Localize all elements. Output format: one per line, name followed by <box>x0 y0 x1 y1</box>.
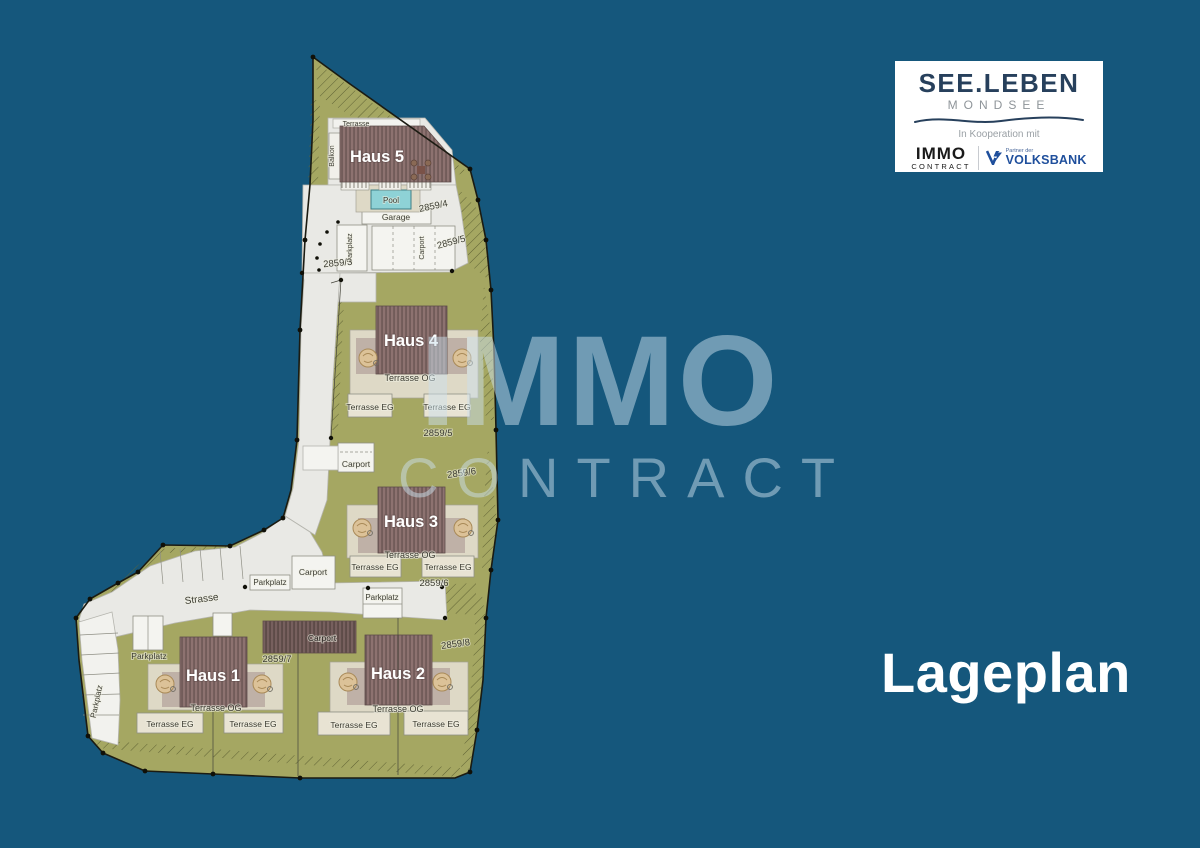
label-balkon: Balkon <box>329 145 336 167</box>
page: Haus 5 Haus 4 Haus 3 Haus 1 Haus 2 Terra… <box>0 0 1200 848</box>
page-title: Lageplan <box>881 640 1131 705</box>
label-terrasse-eg-h3a: Terrasse EG <box>351 562 398 572</box>
label-terrasse-eg-h1a: Terrasse EG <box>146 719 193 729</box>
brand-mondsee: MONDSEE <box>948 99 1051 111</box>
label-terrasse-og-h4: Terrasse OG <box>384 373 435 383</box>
label-carport-mid: Carport <box>342 459 371 469</box>
immocontract-logo: IMMO CONTRACT <box>911 145 970 171</box>
label-terrasse-og-h3: Terrasse OG <box>384 550 435 560</box>
immocontract-logo-sub: CONTRACT <box>911 163 970 171</box>
logo-divider <box>978 146 979 170</box>
label-parcel-2859-7: 2859/7 <box>262 654 291 665</box>
label-haus-5: Haus 5 <box>350 148 404 166</box>
label-terrasse-og-h2: Terrasse OG <box>372 704 423 714</box>
label-parkplatz-h1: Parkplatz <box>131 651 166 661</box>
label-parcel-2859-6b: 2859/6 <box>419 578 448 589</box>
label-carport-low: Carport <box>299 567 328 577</box>
label-haus-1: Haus 1 <box>186 667 240 685</box>
label-haus-4: Haus 4 <box>384 332 439 350</box>
partner-logos: IMMO CONTRACT Partner der VOLKSBANK <box>911 145 1086 171</box>
label-terrasse-eg-h2a: Terrasse EG <box>330 720 377 730</box>
label-terrasse-eg-h3b: Terrasse EG <box>424 562 471 572</box>
label-pool: Pool <box>383 196 399 205</box>
label-parkplatz-h2: Parkplatz <box>365 593 398 602</box>
volksbank-logo: Partner der VOLKSBANK <box>986 149 1087 167</box>
volksbank-v-icon <box>986 150 1003 165</box>
label-haus-2: Haus 2 <box>371 665 425 683</box>
label-carport-roof: Carport <box>308 633 337 643</box>
label-carport-top: Carport <box>419 236 426 259</box>
wave-icon <box>909 113 1089 127</box>
label-terrasse-eg-h4a: Terrasse EG <box>346 402 393 412</box>
cooperation-text: In Kooperation mit <box>958 129 1039 141</box>
balcony-railings <box>341 182 431 190</box>
logo-card: SEE.LEBEN MONDSEE In Kooperation mit IMM… <box>895 61 1103 172</box>
label-terrasse-og-h1: Terrasse OG <box>190 703 241 713</box>
immocontract-logo-top: IMMO <box>916 145 966 162</box>
label-parkplatz-mid: Parkplatz <box>253 578 286 587</box>
label-garage: Garage <box>382 212 411 222</box>
label-terrasse-eg-h1b: Terrasse EG <box>229 719 276 729</box>
brand-seeleben: SEE.LEBEN <box>919 70 1080 96</box>
label-terrasse-eg-h4b: Terrasse EG <box>423 402 470 412</box>
volksbank-name: VOLKSBANK <box>1006 154 1087 167</box>
label-terrasse: Terrasse <box>343 121 370 128</box>
volksbank-text: Partner der VOLKSBANK <box>1006 149 1087 167</box>
label-parcel-2859-5b: 2859/5 <box>423 428 452 439</box>
label-terrasse-eg-h2b: Terrasse EG <box>412 719 459 729</box>
label-haus-3: Haus 3 <box>384 513 438 531</box>
